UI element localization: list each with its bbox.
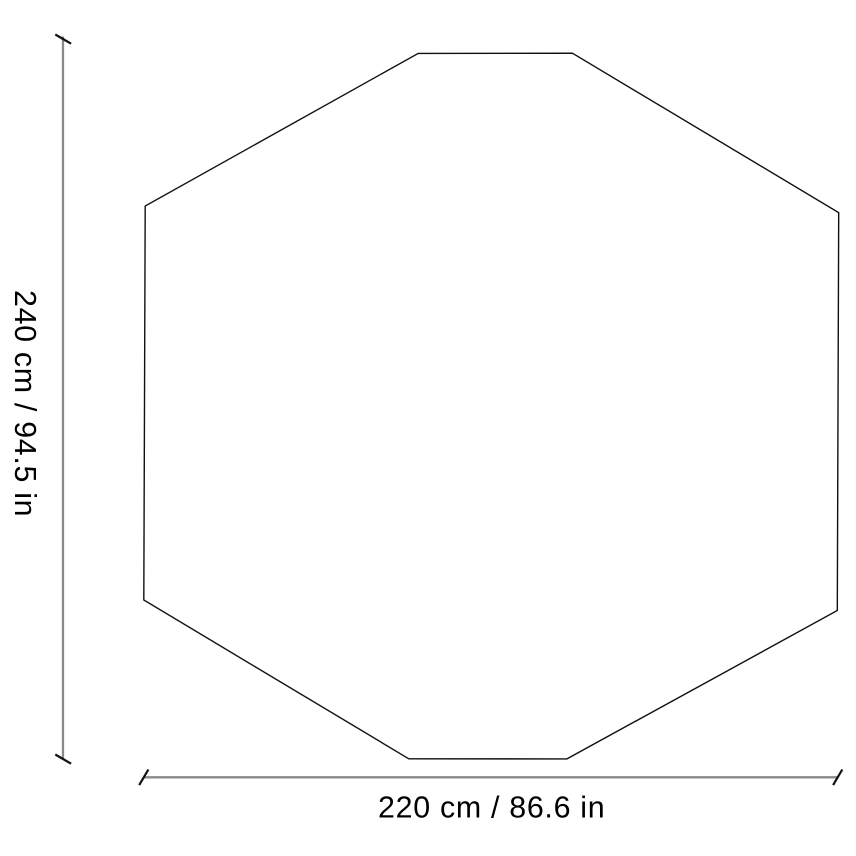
svg-text:220 cm / 86.6 in: 220 cm / 86.6 in xyxy=(378,791,605,825)
svg-text:240 cm / 94.5 in: 240 cm / 94.5 in xyxy=(8,290,42,517)
